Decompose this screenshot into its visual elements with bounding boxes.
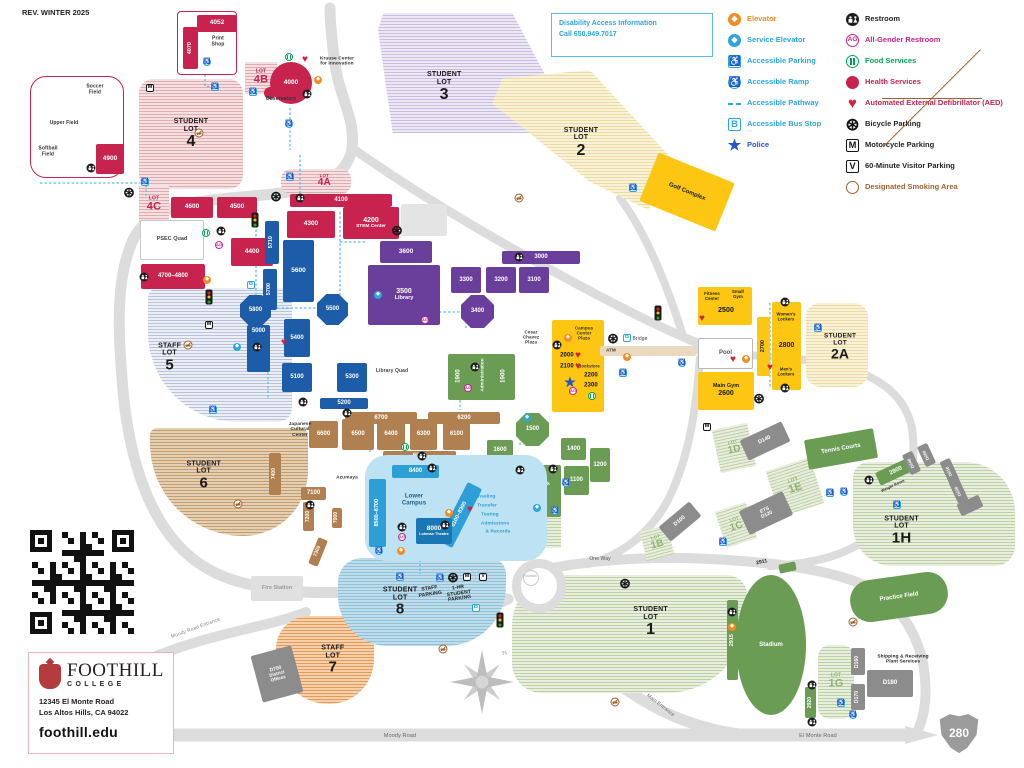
legend-item-60-minute-visitor-parking: V60-Minute Visitor Parking — [846, 160, 1018, 173]
building-4600: 4600 — [171, 197, 213, 218]
building-7100: 7100 — [301, 487, 326, 500]
building-d170: D170 — [851, 684, 865, 710]
accessible-ramp-icon: ♿ — [849, 711, 857, 719]
building-4100: 4100 — [290, 194, 392, 207]
lot-4c: LOT4C — [139, 186, 169, 224]
building-7400: 7400 — [269, 453, 281, 495]
building-4070: 4070 — [183, 27, 198, 69]
bicycle-parking-icon: ⊛ — [124, 187, 134, 197]
aed-icon: ♥ — [466, 506, 474, 514]
smoking-area-icon — [515, 194, 524, 203]
website-url: foothill.edu — [39, 724, 163, 740]
food-services-icon — [401, 443, 409, 451]
restroom-icon — [516, 466, 525, 475]
smoking-area-icon — [846, 181, 859, 194]
map-label: 2000 — [560, 353, 574, 360]
map-label: Campus Center Plaza — [575, 325, 593, 340]
legend-item-accessible-bus-stop: BAccessible Bus Stop — [728, 118, 840, 131]
legend-item-elevator: ◆Elevator — [728, 13, 840, 26]
highway-280-shield: 280 — [936, 712, 982, 754]
aed-icon: ♥ — [846, 97, 859, 110]
traffic-signal-icon — [206, 290, 213, 305]
traffic-signal-icon — [497, 613, 504, 628]
legend-column-2: RestroomAGAll-Gender RestroomFood Servic… — [846, 13, 1018, 194]
restroom-icon — [781, 384, 790, 393]
lot-label: STAFFLOT7 — [321, 644, 344, 675]
building-5300: 5300 — [337, 363, 367, 392]
restroom-icon — [808, 718, 817, 727]
accessible-ramp-icon: ♿ — [285, 120, 293, 128]
lot-1g: LOT1G — [818, 645, 854, 719]
legend-label: Elevator — [747, 15, 777, 24]
aed-icon: ♥ — [729, 356, 737, 364]
lot-label: STUDENTLOT2A — [824, 332, 856, 361]
service-elevator-icon: ◆ — [233, 343, 241, 351]
restroom-icon — [87, 164, 96, 173]
lot-label: LOT4B — [254, 69, 268, 86]
food-services-icon — [846, 55, 859, 68]
map-label: Moody Road — [384, 733, 416, 739]
building-7000: 7000 — [332, 508, 342, 528]
map-label: Small Gym — [732, 290, 744, 300]
service-elevator-icon: ◆ — [523, 414, 531, 422]
legend-label: Accessible Bus Stop — [747, 120, 821, 129]
qr-finder-pattern — [30, 612, 52, 634]
legend-label: Accessible Pathway — [747, 99, 819, 108]
map-label: Bridge — [632, 337, 647, 343]
restroom-icon — [441, 521, 450, 530]
building-5200: 5200 — [320, 398, 368, 409]
legend-label: Bicycle Parking — [865, 120, 921, 129]
police-icon: ★ — [728, 139, 741, 152]
legend-item-bicycle-parking: ⊛Bicycle Parking — [846, 118, 1018, 131]
building-ets-d120: ETSD120 — [739, 491, 793, 535]
building-7300: 7300 — [308, 537, 328, 567]
building-4900: 4900 — [96, 144, 124, 174]
all-gender-restroom-icon: AG — [421, 316, 429, 324]
accessible-parking-icon: ♿ — [619, 369, 627, 377]
visitor-parking-icon: V — [479, 573, 487, 581]
lot-label: LOT4A — [318, 174, 331, 190]
map-label: Cesar Chavez Plaza — [523, 329, 539, 344]
building-2911 — [778, 561, 796, 573]
map-label: Transfer — [477, 503, 497, 508]
building-5100: 5100 — [282, 363, 312, 392]
map-label: 2911 — [756, 559, 768, 567]
building-3200: 3200 — [486, 267, 516, 293]
map-label: 2300 — [584, 383, 598, 390]
map-label: Krause Center for Innovation — [320, 57, 354, 68]
all-gender-restroom-icon: AG — [215, 241, 223, 249]
legend-label: Health Services — [865, 78, 921, 87]
food-services-icon — [588, 392, 596, 400]
building-1400: 1400 — [561, 438, 586, 460]
smoking-area-icon — [439, 645, 448, 654]
bicycle-parking-icon: ⊛ — [392, 225, 402, 235]
student-lot-8: STUDENTLOT8 — [338, 558, 506, 646]
main-gym: Main Gym2600 — [698, 372, 754, 410]
building-3300: 3300 — [451, 267, 481, 293]
legend-label: Motorcycle Parking — [865, 141, 934, 150]
restroom-icon — [549, 465, 558, 474]
accessible-bus-stop-icon: B — [472, 604, 480, 612]
practice-field: Practice Field — [848, 569, 951, 624]
map-label: Shipping & Receiving Plant Services — [877, 655, 928, 666]
revision-label: REV. WINTER 2025 — [22, 8, 89, 17]
building-4300: 4300 — [287, 211, 335, 238]
accessible-bus-stop-icon: B — [728, 118, 741, 131]
building-5600: 5600 — [283, 240, 314, 302]
legend-item-police: ★Police — [728, 139, 840, 152]
stadium: Stadium — [736, 575, 806, 715]
lot-label: STUDENTLOT2 — [564, 127, 598, 159]
qr-finder-pattern — [30, 530, 52, 552]
building-3600: 3600 — [380, 241, 432, 263]
motorcycle-parking-icon: M — [846, 139, 859, 152]
police-icon: ★ — [565, 377, 576, 388]
accessible-ramp-icon: ♿ — [551, 507, 559, 515]
aed-icon: ♥ — [698, 315, 706, 323]
accessible-ramp-icon: ♿ — [562, 479, 570, 487]
disability-access-line2: Call 650.949.7017 — [559, 29, 705, 40]
building-6500: 6500 — [342, 419, 374, 450]
accessible-parking-icon: ♿ — [893, 501, 901, 509]
legend-item-accessible-pathway: Accessible Pathway — [728, 97, 840, 110]
food-services-icon — [202, 229, 210, 237]
roundabout — [512, 559, 566, 613]
food-services-icon — [285, 53, 293, 61]
bicycle-parking-icon: ⊛ — [754, 393, 764, 403]
elevator-icon: ◆ — [728, 623, 736, 631]
restroom-icon — [846, 13, 859, 26]
restroom-icon — [808, 681, 817, 690]
restroom-icon — [296, 194, 305, 203]
traffic-signal-icon — [655, 306, 662, 321]
legend-column-1: ◆Elevator◆Service Elevator♿Accessible Pa… — [728, 13, 840, 152]
all-gender-restroom-icon: AG — [464, 384, 472, 392]
map-label: Moody Road Entrance — [171, 618, 221, 641]
legend-label: Accessible Ramp — [747, 78, 809, 87]
legend-item-health-services: Health Services — [846, 76, 1018, 89]
legend-label: 60-Minute Visitor Parking — [865, 162, 955, 171]
accessible-ramp-icon: ♿ — [203, 58, 211, 66]
map-label: Soccer Field — [86, 84, 103, 95]
restroom-icon — [471, 363, 480, 372]
building-5400: 5400 — [284, 319, 310, 357]
elevator-icon: ◆ — [742, 355, 750, 363]
restroom-icon — [515, 253, 524, 262]
map-label: 2200 — [584, 373, 598, 380]
lot-label: STUDENTLOT6 — [186, 460, 220, 491]
lot-label: LOT1B — [649, 534, 666, 553]
bicycle-parking-icon: ⊛ — [846, 118, 859, 131]
motorcycle-parking-icon: M — [703, 423, 711, 431]
accessible-bus-stop-icon: B — [623, 334, 631, 342]
map-label: Counseling — [468, 494, 495, 499]
restroom-icon — [418, 452, 427, 461]
legend-item-accessible-ramp: ♿Accessible Ramp — [728, 76, 840, 89]
traffic-signal-icon — [252, 213, 259, 228]
map-label: ATM — [606, 347, 616, 352]
legend-label: Accessible Parking — [747, 57, 816, 66]
elevator-icon: ◆ — [314, 76, 322, 84]
map-label: 2500 — [718, 307, 734, 315]
student-lot-6: STUDENTLOT6 — [150, 428, 308, 536]
aed-icon: ♥ — [574, 363, 582, 371]
accessible-parking-icon: ♿ — [141, 178, 149, 186]
accessible-parking-icon: ♿ — [814, 324, 822, 332]
lot-label: LOT1E — [786, 477, 805, 498]
map-label: Azumaya — [336, 475, 358, 480]
fire-station: Fire Station — [251, 576, 303, 601]
accessible-ramp-icon: ♿ — [678, 359, 686, 367]
map-label: 2100 — [560, 364, 574, 371]
motorcycle-parking-icon: M — [463, 573, 471, 581]
elevator-icon: ◆ — [203, 276, 211, 284]
service-elevator-icon: ◆ — [533, 504, 541, 512]
map-label: Print Shop — [212, 36, 225, 47]
building-1500: 1500 — [516, 413, 549, 446]
aed-icon: ♥ — [301, 56, 309, 64]
aed-icon: ♥ — [280, 339, 288, 347]
bicycle-parking-icon: ⊛ — [271, 191, 281, 201]
accessible-ramp-icon: ♿ — [728, 76, 741, 89]
compass-rose-icon — [448, 648, 516, 716]
smoking-area-icon — [234, 500, 243, 509]
building-3100: 3100 — [519, 267, 549, 293]
restroom-icon — [553, 341, 562, 350]
legend-label: All-Gender Restroom — [865, 36, 940, 45]
map-label: Softball Field — [38, 146, 57, 157]
map-label: Upper Field — [50, 121, 79, 127]
aed-icon: ♥ — [574, 352, 582, 360]
map-label: 1-HR STUDENT PARKING — [446, 584, 472, 604]
accessible-parking-icon: ♿ — [826, 489, 834, 497]
building-2920: 2920 — [805, 687, 816, 718]
restroom-icon — [781, 298, 790, 307]
disability-access-info-box: Disability Access Information Call 650.9… — [551, 13, 713, 57]
all-gender-restroom-icon: AG — [398, 533, 406, 541]
building-1200: 1200 — [590, 448, 610, 482]
address-line2: Los Altos Hills, CA 94022 — [39, 707, 163, 718]
map-label: Main Entrance — [645, 693, 675, 718]
service-elevator-icon: ◆ — [728, 34, 741, 47]
smoking-area-icon — [184, 341, 193, 350]
elevator-icon: ◆ — [445, 509, 453, 517]
map-label: & Records — [486, 529, 511, 534]
elevator-icon: ◆ — [564, 334, 572, 342]
service-elevator-icon: ◆ — [374, 291, 382, 299]
campus-map: REV. WINTER 2025 Disability Access Infor… — [0, 0, 1024, 768]
legend-label: Police — [747, 141, 769, 150]
health-services-icon — [846, 76, 859, 89]
lot-label: STUDENTLOT1H — [884, 515, 918, 546]
student-lot-4: STUDENTLOT4 — [139, 79, 243, 189]
legend-label: Automated External Defibrillator (AED) — [865, 99, 1003, 108]
map-label: Library Quad — [376, 369, 408, 375]
restroom-icon — [217, 227, 226, 236]
map-label: Testing — [481, 512, 498, 517]
foothill-logo-icon — [39, 664, 61, 689]
building-unlabeled — [401, 204, 447, 236]
building-d180: D180 — [867, 670, 913, 697]
elevator-icon: ◆ — [728, 13, 741, 26]
restroom-icon — [306, 501, 315, 510]
qr-finder-pattern — [112, 530, 134, 552]
accessible-parking-icon: ♿ — [436, 574, 444, 582]
building-8500–8700: 8500–8700 — [369, 479, 386, 547]
visitor-parking-icon: V — [846, 160, 859, 173]
accessible-pathway-icon — [728, 97, 741, 110]
map-label: Admissions — [481, 521, 509, 526]
building-d100: D100 — [659, 501, 702, 541]
lot-label: STAFFLOT5 — [158, 342, 181, 373]
building-6300: 6300 — [410, 419, 437, 450]
map-label: One Way — [589, 557, 610, 563]
golf-complex: Golf Complex — [639, 153, 735, 232]
map-label: 1900 — [456, 369, 463, 383]
motorcycle-parking-icon: M — [205, 321, 213, 329]
building-5500: 5500 — [317, 294, 348, 325]
accessible-parking-icon: ♿ — [209, 406, 217, 414]
college-subtitle: COLLEGE — [67, 681, 164, 688]
restroom-icon — [303, 90, 312, 99]
legend-label: Restroom — [865, 15, 900, 24]
elevator-icon: ◆ — [623, 353, 631, 361]
lot-label: LOT1G — [828, 673, 843, 690]
college-wordmark: FOOTHILL — [67, 661, 164, 680]
restroom-icon — [253, 343, 262, 352]
pool: Pool — [698, 338, 753, 369]
restroom-icon — [140, 273, 149, 282]
map-label: Lower Campus — [402, 493, 426, 506]
aed-icon: ♥ — [766, 364, 774, 372]
lot-label: STUDENTLOT8 — [383, 586, 417, 617]
building-6600: 6600 — [309, 421, 338, 448]
map-label: 1900 — [501, 369, 508, 383]
building-4052: 4052 — [197, 15, 237, 32]
college-info-card: FOOTHILL COLLEGE 12345 El Monte Road Los… — [28, 652, 174, 754]
address-line1: 12345 El Monte Road — [39, 696, 163, 707]
map-label: Women's Lockers — [776, 312, 795, 321]
accessible-bus-stop-icon: B — [247, 281, 255, 289]
building-6100: 6100 — [443, 419, 470, 450]
legend-item-all-gender-restroom: AGAll-Gender Restroom — [846, 34, 1018, 47]
restroom-icon — [398, 523, 407, 532]
legend-item-restroom: Restroom — [846, 13, 1018, 26]
student-lot-2a: STUDENTLOT2A — [806, 303, 868, 387]
bicycle-parking-icon: ⊛ — [620, 578, 630, 588]
psec-quad: PSEC Quad — [140, 220, 204, 260]
accessible-ramp-icon: ♿ — [840, 488, 848, 496]
building-d160: D160 — [851, 648, 865, 675]
accessible-ramp-icon: ♿ — [375, 547, 383, 555]
map-label: El Monte Road — [799, 733, 837, 739]
qr-code — [28, 528, 142, 642]
elevator-icon: ◆ — [397, 547, 405, 555]
disability-access-line1: Disability Access Information — [559, 18, 705, 29]
map-label: Fountain — [523, 575, 536, 579]
building-3400: 3400 — [461, 295, 494, 328]
legend-item-service-elevator: ◆Service Elevator — [728, 34, 840, 47]
building-5710: 5710 — [265, 221, 279, 264]
accessible-parking-icon: ♿ — [728, 55, 741, 68]
restroom-icon — [728, 608, 737, 617]
lot-label: LOT4C — [147, 196, 161, 213]
map-label: Japanese Cultural Center — [289, 422, 312, 438]
map-label: Administration — [479, 358, 484, 391]
legend-label: Food Services — [865, 57, 916, 66]
smoking-area-icon — [611, 698, 620, 707]
legend-label: Designated Smoking Area — [865, 183, 958, 192]
accessible-parking-icon: ♿ — [211, 83, 219, 91]
restroom-icon — [428, 464, 437, 473]
legend-item-accessible-parking: ♿Accessible Parking — [728, 55, 840, 68]
legend-item-designated-smoking-area: Designated Smoking Area — [846, 181, 1018, 194]
bicycle-parking-icon: ⊛ — [608, 333, 618, 343]
aed-icon: ♥ — [230, 242, 238, 250]
all-gender-restroom-icon: AG — [846, 34, 859, 47]
restroom-icon — [865, 476, 874, 485]
accessible-parking-icon: ♿ — [629, 184, 637, 192]
map-label: Men's Lockers — [778, 367, 795, 376]
smoking-area-icon — [195, 129, 204, 138]
accessible-parking-icon: ♿ — [719, 538, 727, 546]
legend-item-food-services: Food Services — [846, 55, 1018, 68]
restroom-icon — [343, 409, 352, 418]
legend-item-motorcycle-parking: MMotorcycle Parking — [846, 139, 1018, 152]
accessible-parking-icon: ♿ — [837, 699, 845, 707]
accessible-parking-icon: ♿ — [249, 88, 257, 96]
motorcycle-parking-icon: M — [146, 84, 154, 92]
accessible-parking-icon: ♿ — [286, 173, 294, 181]
map-label: Fitness Center — [704, 292, 720, 302]
lot-label: STUDENTLOT3 — [427, 71, 461, 103]
accessible-parking-icon: ♿ — [396, 573, 404, 581]
smoking-area-icon — [849, 618, 858, 627]
legend-label: Service Elevator — [747, 36, 805, 45]
lot-label: STUDENTLOT1 — [633, 606, 667, 638]
map-label: Observatory — [266, 97, 297, 103]
bicycle-parking-icon: ⊛ — [448, 572, 458, 582]
building-4700–4800: 4700–4800 — [141, 264, 205, 289]
restroom-icon — [299, 398, 308, 407]
